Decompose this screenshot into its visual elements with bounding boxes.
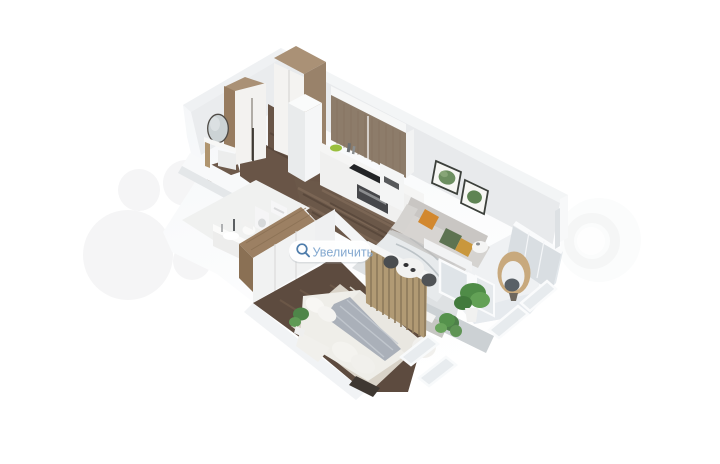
- svg-text:Увеличить: Увеличить: [313, 246, 374, 260]
